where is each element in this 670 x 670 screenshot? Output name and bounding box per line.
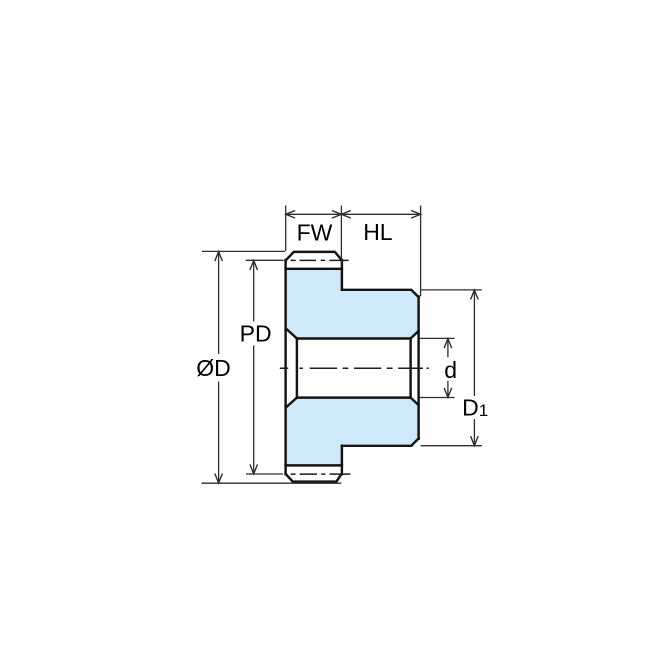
svg-text:PD: PD (240, 321, 272, 347)
svg-text:ØD: ØD (196, 355, 231, 381)
svg-text:FW: FW (297, 220, 333, 246)
svg-text:d: d (444, 357, 457, 383)
svg-text:HL: HL (363, 219, 393, 245)
